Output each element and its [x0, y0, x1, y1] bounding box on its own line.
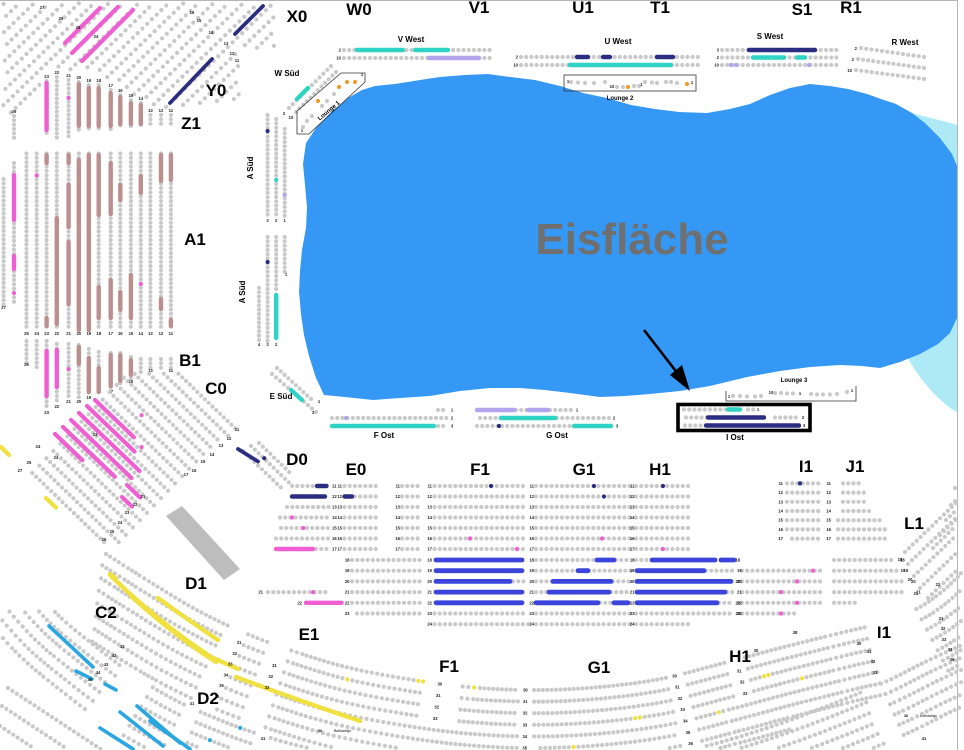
svg-text:24: 24 [630, 622, 635, 627]
svg-text:17: 17 [337, 547, 342, 552]
svg-text:23: 23 [529, 611, 534, 616]
svg-text:31: 31 [737, 669, 742, 674]
svg-text:32: 32 [523, 711, 528, 716]
svg-text:26: 26 [59, 16, 64, 21]
svg-text:27: 27 [1, 305, 6, 310]
svg-text:Y0: Y0 [206, 81, 227, 100]
svg-text:16: 16 [192, 468, 197, 473]
svg-text:10: 10 [714, 63, 719, 68]
svg-text:E1: E1 [299, 625, 320, 644]
svg-text:14: 14 [395, 515, 400, 520]
svg-text:21: 21 [258, 590, 263, 595]
svg-text:E Süd: E Süd [270, 392, 293, 401]
svg-text:11: 11 [332, 484, 337, 489]
svg-text:H1: H1 [649, 460, 671, 479]
svg-text:16: 16 [118, 331, 123, 336]
svg-text:18: 18 [345, 558, 350, 563]
svg-text:V1: V1 [469, 0, 490, 17]
svg-text:32: 32 [232, 651, 237, 656]
svg-text:10: 10 [769, 390, 774, 395]
svg-text:V West: V West [398, 35, 425, 44]
svg-text:G1: G1 [588, 658, 611, 677]
svg-text:I Ost: I Ost [726, 433, 744, 442]
svg-text:23: 23 [427, 611, 432, 616]
svg-text:23: 23 [44, 74, 49, 79]
svg-text:14: 14 [826, 509, 831, 514]
svg-text:22: 22 [54, 70, 59, 75]
svg-text:34: 34 [224, 672, 229, 677]
svg-text:26: 26 [102, 537, 107, 542]
svg-text:Z1: Z1 [181, 114, 201, 133]
svg-text:33: 33 [680, 707, 685, 712]
svg-text:13: 13 [778, 499, 783, 504]
svg-text:16: 16 [826, 527, 831, 532]
svg-text:20: 20 [427, 579, 432, 584]
svg-text:Rollstuhlpl.: Rollstuhlpl. [334, 729, 351, 733]
svg-text:F1: F1 [439, 657, 459, 676]
svg-text:15: 15 [337, 526, 342, 531]
svg-text:38: 38 [904, 714, 908, 718]
svg-text:A1: A1 [184, 230, 206, 249]
svg-text:22: 22 [630, 600, 635, 605]
svg-text:16: 16 [395, 536, 400, 541]
svg-text:10: 10 [336, 56, 341, 61]
svg-text:20: 20 [76, 75, 81, 80]
svg-text:11: 11 [530, 484, 535, 489]
svg-text:12: 12 [159, 331, 164, 336]
svg-text:31: 31 [675, 685, 680, 690]
svg-text:20: 20 [737, 579, 742, 584]
svg-text:I1: I1 [877, 623, 891, 642]
svg-text:23: 23 [345, 611, 350, 616]
svg-text:24: 24 [529, 622, 534, 627]
svg-text:25: 25 [110, 529, 115, 534]
svg-text:18: 18 [96, 78, 101, 83]
svg-text:30: 30 [523, 688, 528, 693]
svg-text:16: 16 [778, 527, 783, 532]
svg-text:X0: X0 [287, 7, 308, 26]
svg-text:24: 24 [34, 331, 39, 336]
svg-text:22: 22 [427, 600, 432, 605]
svg-text:22: 22 [737, 600, 742, 605]
svg-text:19: 19 [427, 568, 432, 573]
svg-text:21: 21 [66, 73, 71, 78]
svg-text:31: 31 [523, 699, 528, 704]
svg-text:27: 27 [40, 5, 45, 10]
svg-text:24: 24 [36, 444, 41, 449]
svg-text:13: 13 [224, 41, 229, 46]
svg-text:14: 14 [427, 515, 432, 520]
svg-text:36: 36 [688, 741, 693, 746]
svg-text:19: 19 [86, 331, 91, 336]
svg-text:11: 11 [827, 481, 832, 486]
svg-text:19: 19 [737, 568, 742, 573]
svg-text:G1: G1 [573, 460, 596, 479]
svg-text:16: 16 [427, 536, 432, 541]
svg-text:30: 30 [672, 673, 677, 678]
svg-text:12: 12 [395, 494, 400, 499]
svg-text:W0: W0 [346, 0, 372, 19]
svg-text:20: 20 [630, 579, 635, 584]
svg-text:18: 18 [96, 331, 101, 336]
svg-text:S1: S1 [792, 0, 813, 19]
svg-text:21: 21 [427, 590, 432, 595]
svg-text:31: 31 [272, 663, 277, 668]
svg-text:24: 24 [118, 520, 123, 525]
svg-text:31: 31 [436, 693, 441, 698]
svg-text:13: 13 [630, 505, 635, 510]
svg-text:34: 34 [683, 719, 688, 724]
svg-text:11: 11 [779, 481, 784, 486]
svg-text:23: 23 [125, 510, 130, 515]
svg-text:R West: R West [892, 38, 919, 47]
svg-text:19: 19 [86, 78, 91, 83]
svg-text:21: 21 [66, 399, 71, 404]
svg-text:22: 22 [54, 404, 59, 409]
svg-text:10: 10 [610, 84, 615, 89]
svg-text:15: 15 [201, 459, 206, 464]
svg-text:13: 13 [219, 443, 224, 448]
svg-text:L1: L1 [904, 514, 924, 533]
svg-text:14: 14 [630, 515, 635, 520]
svg-text:33: 33 [523, 722, 528, 727]
svg-text:35: 35 [522, 746, 527, 750]
svg-text:16: 16 [529, 536, 534, 541]
svg-text:16: 16 [118, 88, 123, 93]
svg-text:U West: U West [605, 37, 632, 46]
svg-text:12: 12 [159, 108, 164, 113]
svg-text:D0: D0 [286, 450, 308, 469]
svg-text:15: 15 [529, 526, 534, 531]
svg-text:G Ost: G Ost [546, 431, 568, 440]
svg-text:R1: R1 [840, 0, 862, 17]
svg-text:D1: D1 [185, 574, 207, 593]
svg-text:Lounge 3: Lounge 3 [781, 378, 808, 384]
svg-text:H1: H1 [729, 647, 751, 666]
svg-text:25: 25 [24, 331, 29, 336]
svg-text:11: 11 [630, 484, 635, 489]
svg-text:Eisfläche: Eisfläche [535, 215, 728, 264]
svg-text:21: 21 [630, 590, 635, 595]
svg-text:C0: C0 [205, 379, 227, 398]
svg-text:E0: E0 [346, 460, 367, 479]
svg-text:34: 34 [522, 734, 527, 739]
svg-text:32: 32 [434, 704, 439, 709]
svg-text:17: 17 [778, 536, 783, 541]
svg-text:21: 21 [141, 494, 146, 499]
svg-text:14: 14 [210, 452, 215, 457]
svg-text:23: 23 [93, 432, 98, 437]
svg-text:11: 11 [235, 58, 240, 63]
svg-text:26: 26 [24, 362, 29, 367]
svg-text:27: 27 [18, 468, 23, 473]
svg-text:22: 22 [54, 331, 59, 336]
svg-text:F Ost: F Ost [374, 431, 395, 440]
svg-text:32: 32 [678, 696, 683, 701]
svg-text:18: 18 [529, 558, 534, 563]
svg-text:17: 17 [395, 547, 400, 552]
svg-text:U1: U1 [572, 0, 594, 17]
svg-text:15: 15 [630, 526, 635, 531]
svg-text:19: 19 [529, 568, 534, 573]
svg-text:32: 32 [740, 680, 745, 685]
svg-text:12: 12 [630, 494, 635, 499]
svg-text:18: 18 [898, 557, 903, 562]
svg-text:19: 19 [86, 395, 91, 400]
svg-text:17: 17 [529, 547, 534, 552]
svg-text:20: 20 [529, 579, 534, 584]
svg-text:14: 14 [138, 331, 143, 336]
svg-text:19: 19 [345, 568, 350, 573]
svg-text:19: 19 [901, 568, 906, 573]
svg-text:33: 33 [228, 662, 233, 667]
svg-text:17: 17 [427, 547, 432, 552]
svg-text:13: 13 [148, 108, 153, 113]
svg-text:24: 24 [94, 34, 99, 39]
svg-text:15: 15 [129, 331, 134, 336]
svg-text:11: 11 [235, 427, 240, 432]
svg-text:12: 12 [778, 490, 783, 495]
svg-text:30: 30 [437, 681, 442, 686]
svg-text:17: 17 [184, 472, 189, 477]
svg-text:16: 16 [190, 10, 195, 15]
svg-text:35: 35 [686, 730, 691, 735]
svg-text:23: 23 [44, 410, 49, 415]
svg-text:F1: F1 [470, 460, 490, 479]
svg-text:33: 33 [433, 716, 438, 721]
svg-text:21: 21 [66, 331, 71, 336]
svg-text:12: 12 [230, 51, 235, 56]
svg-text:15: 15 [395, 526, 400, 531]
svg-text:24: 24 [427, 622, 432, 627]
svg-text:23: 23 [737, 611, 742, 616]
svg-text:22: 22 [297, 600, 302, 605]
svg-text:24: 24 [54, 455, 59, 460]
svg-text:11: 11 [396, 484, 401, 489]
svg-text:22: 22 [133, 502, 138, 507]
svg-text:14: 14 [337, 515, 342, 520]
svg-text:20: 20 [345, 579, 350, 584]
svg-text:20: 20 [76, 399, 81, 404]
svg-text:11: 11 [428, 484, 433, 489]
svg-text:13: 13 [148, 331, 153, 336]
svg-text:23: 23 [44, 331, 49, 336]
svg-text:11: 11 [169, 108, 174, 113]
svg-text:21: 21 [737, 590, 742, 595]
svg-text:14: 14 [529, 515, 534, 520]
svg-text:10: 10 [289, 115, 294, 120]
svg-text:13: 13 [337, 505, 342, 510]
svg-text:21: 21 [529, 590, 534, 595]
svg-text:12: 12 [826, 490, 831, 495]
svg-text:17: 17 [826, 536, 831, 541]
svg-text:16: 16 [337, 536, 342, 541]
svg-text:22: 22 [529, 600, 534, 605]
svg-text:T1: T1 [650, 0, 670, 17]
svg-text:14: 14 [209, 30, 214, 35]
svg-text:25: 25 [27, 460, 32, 465]
svg-text:32: 32 [268, 674, 273, 679]
svg-text:25: 25 [76, 25, 81, 30]
svg-text:20: 20 [76, 331, 81, 336]
svg-text:15: 15 [427, 526, 432, 531]
svg-text:23: 23 [630, 611, 635, 616]
svg-text:10: 10 [847, 68, 852, 73]
svg-text:14: 14 [778, 509, 783, 514]
svg-text:19: 19 [630, 568, 635, 573]
svg-text:35: 35 [219, 683, 224, 688]
svg-text:17: 17 [630, 547, 635, 552]
svg-text:31: 31 [237, 640, 242, 645]
svg-text:15: 15 [826, 518, 831, 523]
svg-text:12: 12 [227, 436, 232, 441]
svg-text:S West: S West [757, 32, 784, 41]
svg-text:12: 12 [337, 494, 342, 499]
svg-text:12: 12 [427, 494, 432, 499]
svg-text:22: 22 [345, 600, 350, 605]
svg-text:21: 21 [914, 591, 919, 596]
svg-text:18: 18 [630, 558, 635, 563]
svg-text:11: 11 [169, 331, 174, 336]
svg-text:A Süd: A Süd [246, 156, 255, 179]
svg-text:10: 10 [513, 63, 518, 68]
svg-text:11: 11 [338, 484, 343, 489]
svg-text:20: 20 [908, 577, 913, 582]
svg-text:17: 17 [108, 83, 113, 88]
svg-text:J1: J1 [846, 457, 865, 476]
svg-text:W Süd: W Süd [275, 69, 300, 78]
svg-text:38: 38 [318, 729, 322, 733]
svg-text:11: 11 [169, 368, 174, 373]
svg-text:13: 13 [529, 505, 534, 510]
svg-text:21: 21 [345, 590, 350, 595]
svg-text:13: 13 [826, 499, 831, 504]
svg-text:22: 22 [936, 582, 941, 587]
svg-text:I1: I1 [799, 457, 813, 476]
svg-text:17: 17 [108, 331, 113, 336]
svg-text:Lounge 2: Lounge 2 [607, 96, 634, 102]
svg-text:26: 26 [12, 109, 17, 114]
svg-text:12: 12 [529, 494, 534, 499]
svg-text:13: 13 [427, 505, 432, 510]
svg-text:14: 14 [138, 96, 143, 101]
svg-text:33: 33 [743, 691, 748, 696]
svg-text:15: 15 [129, 93, 134, 98]
svg-text:18: 18 [427, 558, 432, 563]
svg-text:A Süd: A Süd [238, 280, 247, 303]
svg-text:15: 15 [778, 518, 783, 523]
svg-text:15: 15 [197, 18, 202, 23]
svg-text:16: 16 [630, 536, 635, 541]
svg-text:B1: B1 [179, 351, 201, 370]
svg-text:13: 13 [395, 505, 400, 510]
svg-text:33: 33 [265, 685, 270, 690]
svg-text:18: 18 [736, 558, 741, 563]
